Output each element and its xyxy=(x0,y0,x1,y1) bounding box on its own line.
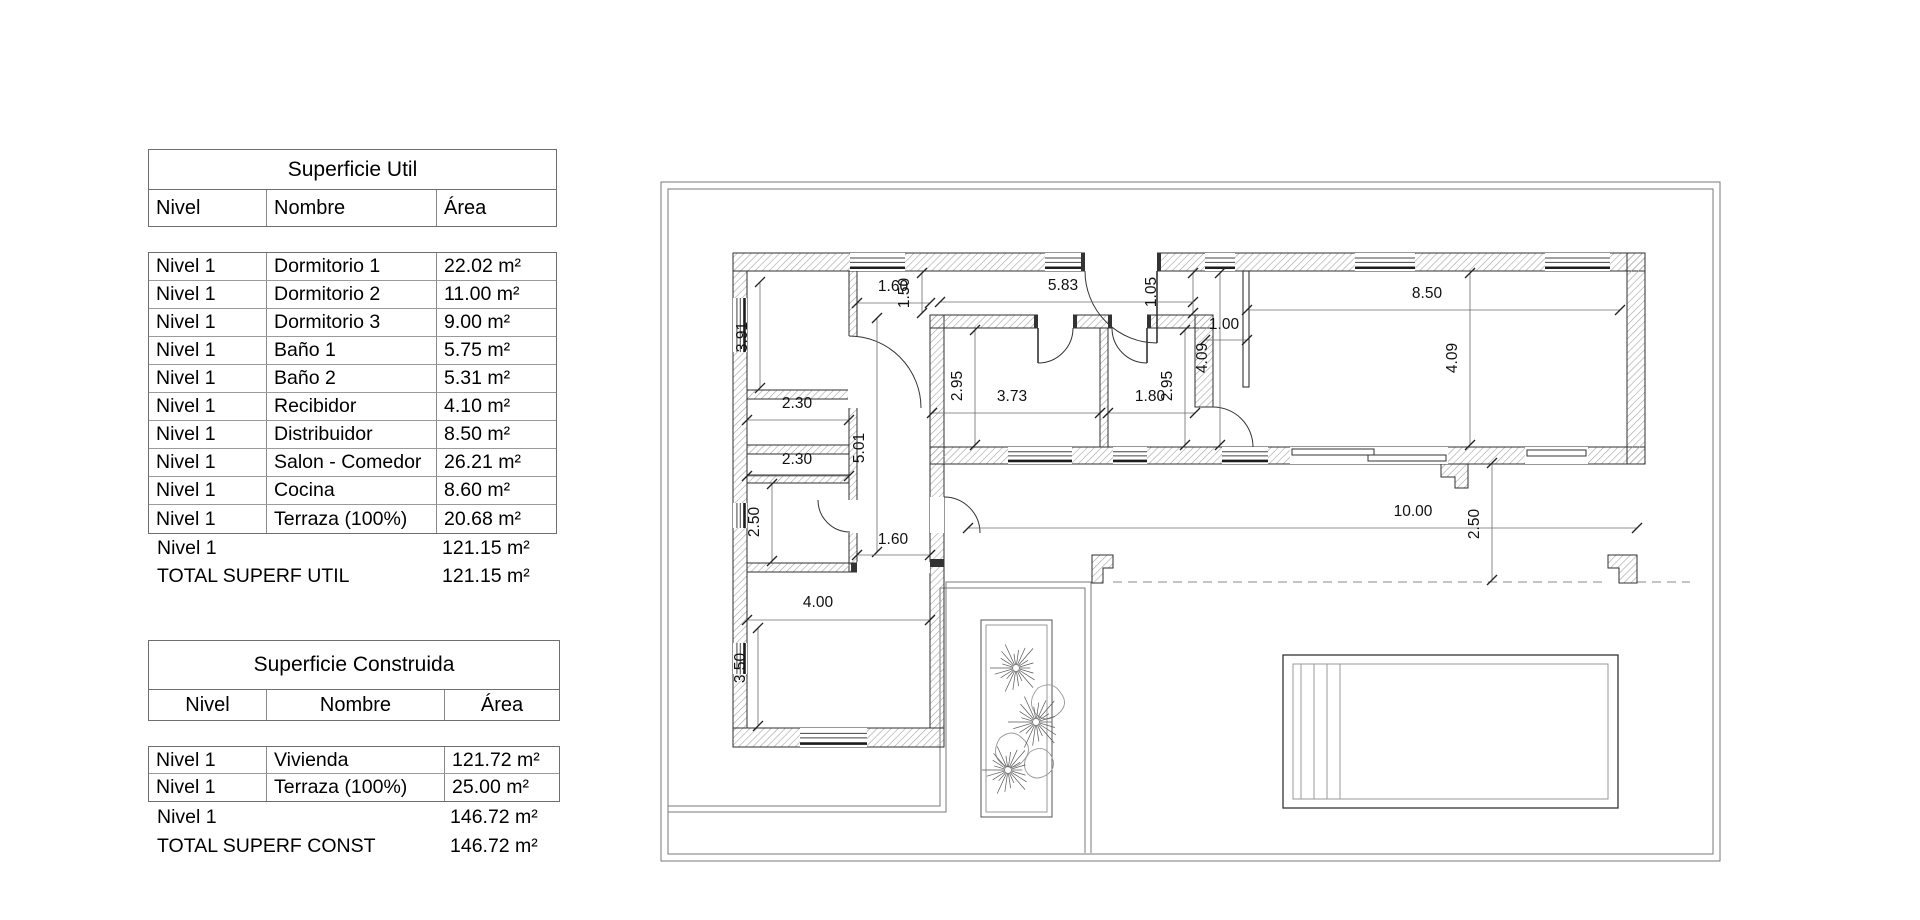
table-title-text: Superficie Construida xyxy=(254,653,455,677)
table-row: Nivel 1Terraza (100%)25.00 m² xyxy=(149,774,559,801)
terrace-corner-pier xyxy=(1441,464,1468,488)
terrace-pier-right xyxy=(1608,555,1637,583)
table-row: Nivel 1Baño 25.31 m² xyxy=(149,365,556,393)
subtotal-label: Nivel 1 xyxy=(148,806,217,829)
dimension: 1.50 xyxy=(896,268,927,318)
table-cell: 20.68 m² xyxy=(436,505,556,533)
tree-icon xyxy=(982,746,1027,793)
dimension-label: 5.83 xyxy=(1048,277,1078,294)
table-summary: Nivel 1 146.72 m² TOTAL SUPERF CONST 146… xyxy=(148,802,560,860)
table-cell: 9.00 m² xyxy=(436,309,556,336)
door-arc xyxy=(818,500,850,532)
table-cell: 26.21 m² xyxy=(436,449,556,476)
dimension-label: 1.05 xyxy=(1143,277,1160,307)
table-cell: Recibidor xyxy=(266,393,436,420)
dimension: 4.09 xyxy=(1444,268,1475,450)
dimension: 1.60 xyxy=(852,531,935,560)
column-header-area: Área xyxy=(436,190,556,226)
swimming-pool xyxy=(1283,655,1618,808)
table-row: Nivel 1Dormitorio 122.02 m² xyxy=(149,253,556,281)
area-table-util: Superficie Util Nivel Nombre Área Nivel … xyxy=(148,149,557,590)
table-cell: Terraza (100%) xyxy=(266,774,444,801)
total-value: 146.72 m² xyxy=(450,835,538,858)
total-row: TOTAL SUPERF UTIL 121.15 m² xyxy=(148,562,557,590)
table-cell: Dormitorio 2 xyxy=(266,281,436,308)
dimension: 10.00 xyxy=(963,503,1642,533)
tree-icon xyxy=(990,644,1035,691)
table-row: Nivel 1Distribuidor8.50 m² xyxy=(149,421,556,449)
column-header-nivel: Nivel xyxy=(149,690,266,720)
table-cell: Dormitorio 1 xyxy=(266,253,436,280)
table-cell: 25.00 m² xyxy=(444,774,559,801)
sliding-door-panel xyxy=(1527,450,1586,456)
table-row: Nivel 1Vivienda121.72 m² xyxy=(149,747,559,774)
table-summary: Nivel 1 121.15 m² TOTAL SUPERF UTIL 121.… xyxy=(148,534,557,590)
tree-icon xyxy=(1008,697,1056,748)
dimension-label: 2.30 xyxy=(782,451,813,468)
doors xyxy=(818,271,1253,533)
table-cell: Dormitorio 3 xyxy=(266,309,436,336)
table-cell: Nivel 1 xyxy=(149,337,266,364)
dimension: 1.80 xyxy=(1103,388,1200,418)
dimension-label: 3.91 xyxy=(734,322,751,352)
dimension-label: 8.50 xyxy=(1412,285,1443,302)
table-cell: Nivel 1 xyxy=(149,281,266,308)
table-cell: 8.60 m² xyxy=(436,477,556,504)
table-title: Superficie Construida xyxy=(148,640,560,690)
door-arc xyxy=(1112,328,1147,363)
table-row: Nivel 1Baño 15.75 m² xyxy=(149,337,556,365)
site-boundary xyxy=(661,182,1720,861)
dimension: 4.09 xyxy=(1194,268,1225,450)
table-cell: Cocina xyxy=(266,477,436,504)
sliding-door-panel xyxy=(1368,455,1446,461)
dimension-label: 5.01 xyxy=(851,433,868,463)
table-row: Nivel 1Dormitorio 211.00 m² xyxy=(149,281,556,309)
area-table-construida: Superficie Construida Nivel Nombre Área … xyxy=(148,640,560,860)
table-cell: Nivel 1 xyxy=(149,309,266,336)
table-cell: Nivel 1 xyxy=(149,747,266,773)
dimension-label: 2.95 xyxy=(949,371,966,401)
table-cell: Distribuidor xyxy=(266,421,436,448)
table-title: Superficie Util xyxy=(148,149,557,190)
floor-plan-sheet: Superficie Util Nivel Nombre Área Nivel … xyxy=(0,0,1920,920)
table-cell: Nivel 1 xyxy=(149,774,266,801)
dimension: 8.50 xyxy=(1242,285,1625,315)
table-cell: 121.72 m² xyxy=(444,747,559,773)
column-header-area: Área xyxy=(444,690,559,720)
door-arc xyxy=(1213,407,1253,447)
table-cell: Baño 1 xyxy=(266,337,436,364)
subtotal-value: 121.15 m² xyxy=(442,537,530,560)
partition-stub-wall xyxy=(1243,271,1249,387)
dimension: 1.60 xyxy=(852,278,935,308)
column-header-nombre: Nombre xyxy=(266,190,436,226)
table-header: Nivel Nombre Área xyxy=(148,690,560,721)
door-arc xyxy=(849,336,921,408)
dimension-label: 4.09 xyxy=(1194,343,1211,373)
table-cell: 22.02 m² xyxy=(436,253,556,280)
table-cell: 11.00 m² xyxy=(436,281,556,308)
dimension-label: 2.30 xyxy=(782,395,813,412)
sliding-door-panel xyxy=(1292,449,1374,455)
dimension-label: 1.80 xyxy=(1135,388,1166,405)
dimension: 2.95 xyxy=(949,325,980,450)
table-cell: Nivel 1 xyxy=(149,393,266,420)
dimension-label: 1.00 xyxy=(1209,316,1240,333)
dimension-label: 4.00 xyxy=(803,594,834,611)
table-body: Nivel 1Vivienda121.72 m²Nivel 1Terraza (… xyxy=(148,746,560,802)
table-cell: Nivel 1 xyxy=(149,449,266,476)
dimension-label: 1.50 xyxy=(896,278,913,309)
dimension: 1.05 xyxy=(1143,268,1198,318)
table-row: Nivel 1Dormitorio 39.00 m² xyxy=(149,309,556,337)
table-cell: Nivel 1 xyxy=(149,421,266,448)
total-row: TOTAL SUPERF CONST 146.72 m² xyxy=(148,832,560,860)
table-header: Nivel Nombre Área xyxy=(148,190,557,227)
table-cell: 5.31 m² xyxy=(436,365,556,392)
table-cell: Baño 2 xyxy=(266,365,436,392)
table-cell: 5.75 m² xyxy=(436,337,556,364)
floor-plan-drawing: 1.601.505.831.051.008.504.094.092.953.73… xyxy=(650,170,1730,870)
door-arc xyxy=(1038,328,1073,363)
subtotal-row: Nivel 1 121.15 m² xyxy=(148,534,557,562)
dimension-label: 10.00 xyxy=(1394,503,1433,520)
dimension-label: 2.50 xyxy=(1466,509,1483,540)
dimension-label: 3.50 xyxy=(732,653,749,684)
dimension-label: 3.73 xyxy=(997,388,1027,405)
table-body: Nivel 1Dormitorio 122.02 m²Nivel 1Dormit… xyxy=(148,252,557,534)
subtotal-row: Nivel 1 146.72 m² xyxy=(148,802,560,832)
dimension-label: 2.50 xyxy=(746,507,763,538)
column-header-nivel: Nivel xyxy=(149,190,266,226)
table-title-text: Superficie Util xyxy=(288,158,418,182)
planter xyxy=(981,620,1065,817)
table-cell: 4.10 m² xyxy=(436,393,556,420)
table-cell: Vivienda xyxy=(266,747,444,773)
total-value: 121.15 m² xyxy=(442,565,530,588)
table-cell: Nivel 1 xyxy=(149,365,266,392)
table-cell: Salon - Comedor xyxy=(266,449,436,476)
table-row: Nivel 1Recibidor4.10 m² xyxy=(149,393,556,421)
table-cell: Terraza (100%) xyxy=(266,505,436,533)
table-cell: Nivel 1 xyxy=(149,253,266,280)
table-row: Nivel 1Cocina8.60 m² xyxy=(149,477,556,505)
dimension: 2.50 xyxy=(1466,458,1497,585)
table-row: Nivel 1Salon - Comedor26.21 m² xyxy=(149,449,556,477)
subtotal-value: 146.72 m² xyxy=(450,806,538,829)
dimension-label: 4.09 xyxy=(1444,343,1461,373)
dimension-annotations: 1.601.505.831.051.008.504.094.092.953.73… xyxy=(732,268,1642,731)
walls xyxy=(733,253,1645,747)
column-header-nombre: Nombre xyxy=(266,690,444,720)
total-label: TOTAL SUPERF UTIL xyxy=(148,565,350,588)
table-cell: Nivel 1 xyxy=(149,477,266,504)
terrace-pier-left xyxy=(1092,555,1113,583)
table-row: Nivel 1Terraza (100%)20.68 m² xyxy=(149,505,556,533)
table-cell: 8.50 m² xyxy=(436,421,556,448)
dimension-label: 1.60 xyxy=(878,531,909,548)
door-openings xyxy=(848,252,1157,573)
table-cell: Nivel 1 xyxy=(149,505,266,533)
total-label: TOTAL SUPERF CONST xyxy=(148,835,376,858)
subtotal-label: Nivel 1 xyxy=(148,537,217,560)
dimension: 4.00 xyxy=(742,594,935,625)
dimension: 2.50 xyxy=(746,479,777,566)
